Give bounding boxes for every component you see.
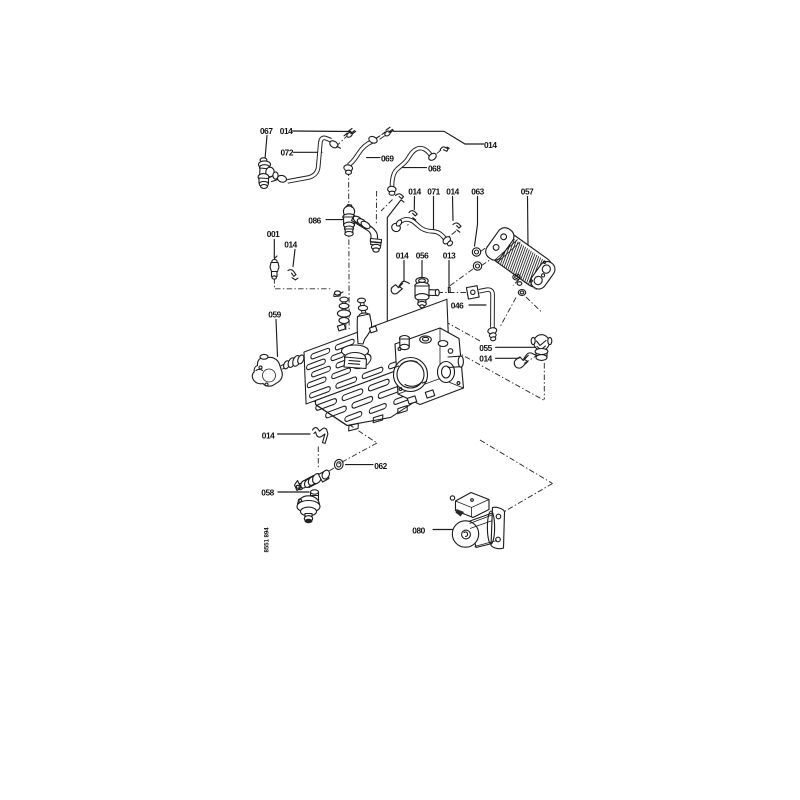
svg-text:062: 062 [374,461,387,471]
svg-text:046: 046 [451,300,464,310]
svg-text:014: 014 [396,250,409,260]
svg-text:071: 071 [427,186,440,196]
svg-text:055: 055 [479,343,492,353]
svg-text:058: 058 [261,487,274,497]
svg-text:014: 014 [284,240,297,250]
svg-text:072: 072 [281,147,294,157]
svg-text:014: 014 [408,186,421,196]
svg-text:086: 086 [308,215,321,225]
svg-text:014: 014 [446,186,459,196]
svg-text:059: 059 [268,309,281,319]
svg-text:057: 057 [521,186,534,196]
svg-text:8551 894: 8551 894 [264,527,271,553]
svg-text:014: 014 [479,353,492,363]
svg-text:063: 063 [471,186,484,196]
svg-text:013: 013 [443,250,456,260]
svg-text:068: 068 [428,163,441,173]
svg-text:014: 014 [280,126,293,136]
svg-text:067: 067 [260,126,273,136]
svg-text:056: 056 [416,250,429,260]
svg-text:014: 014 [262,430,275,440]
svg-text:014: 014 [484,140,497,150]
svg-text:080: 080 [412,525,425,535]
svg-text:001: 001 [267,229,280,239]
svg-text:069: 069 [381,153,394,163]
